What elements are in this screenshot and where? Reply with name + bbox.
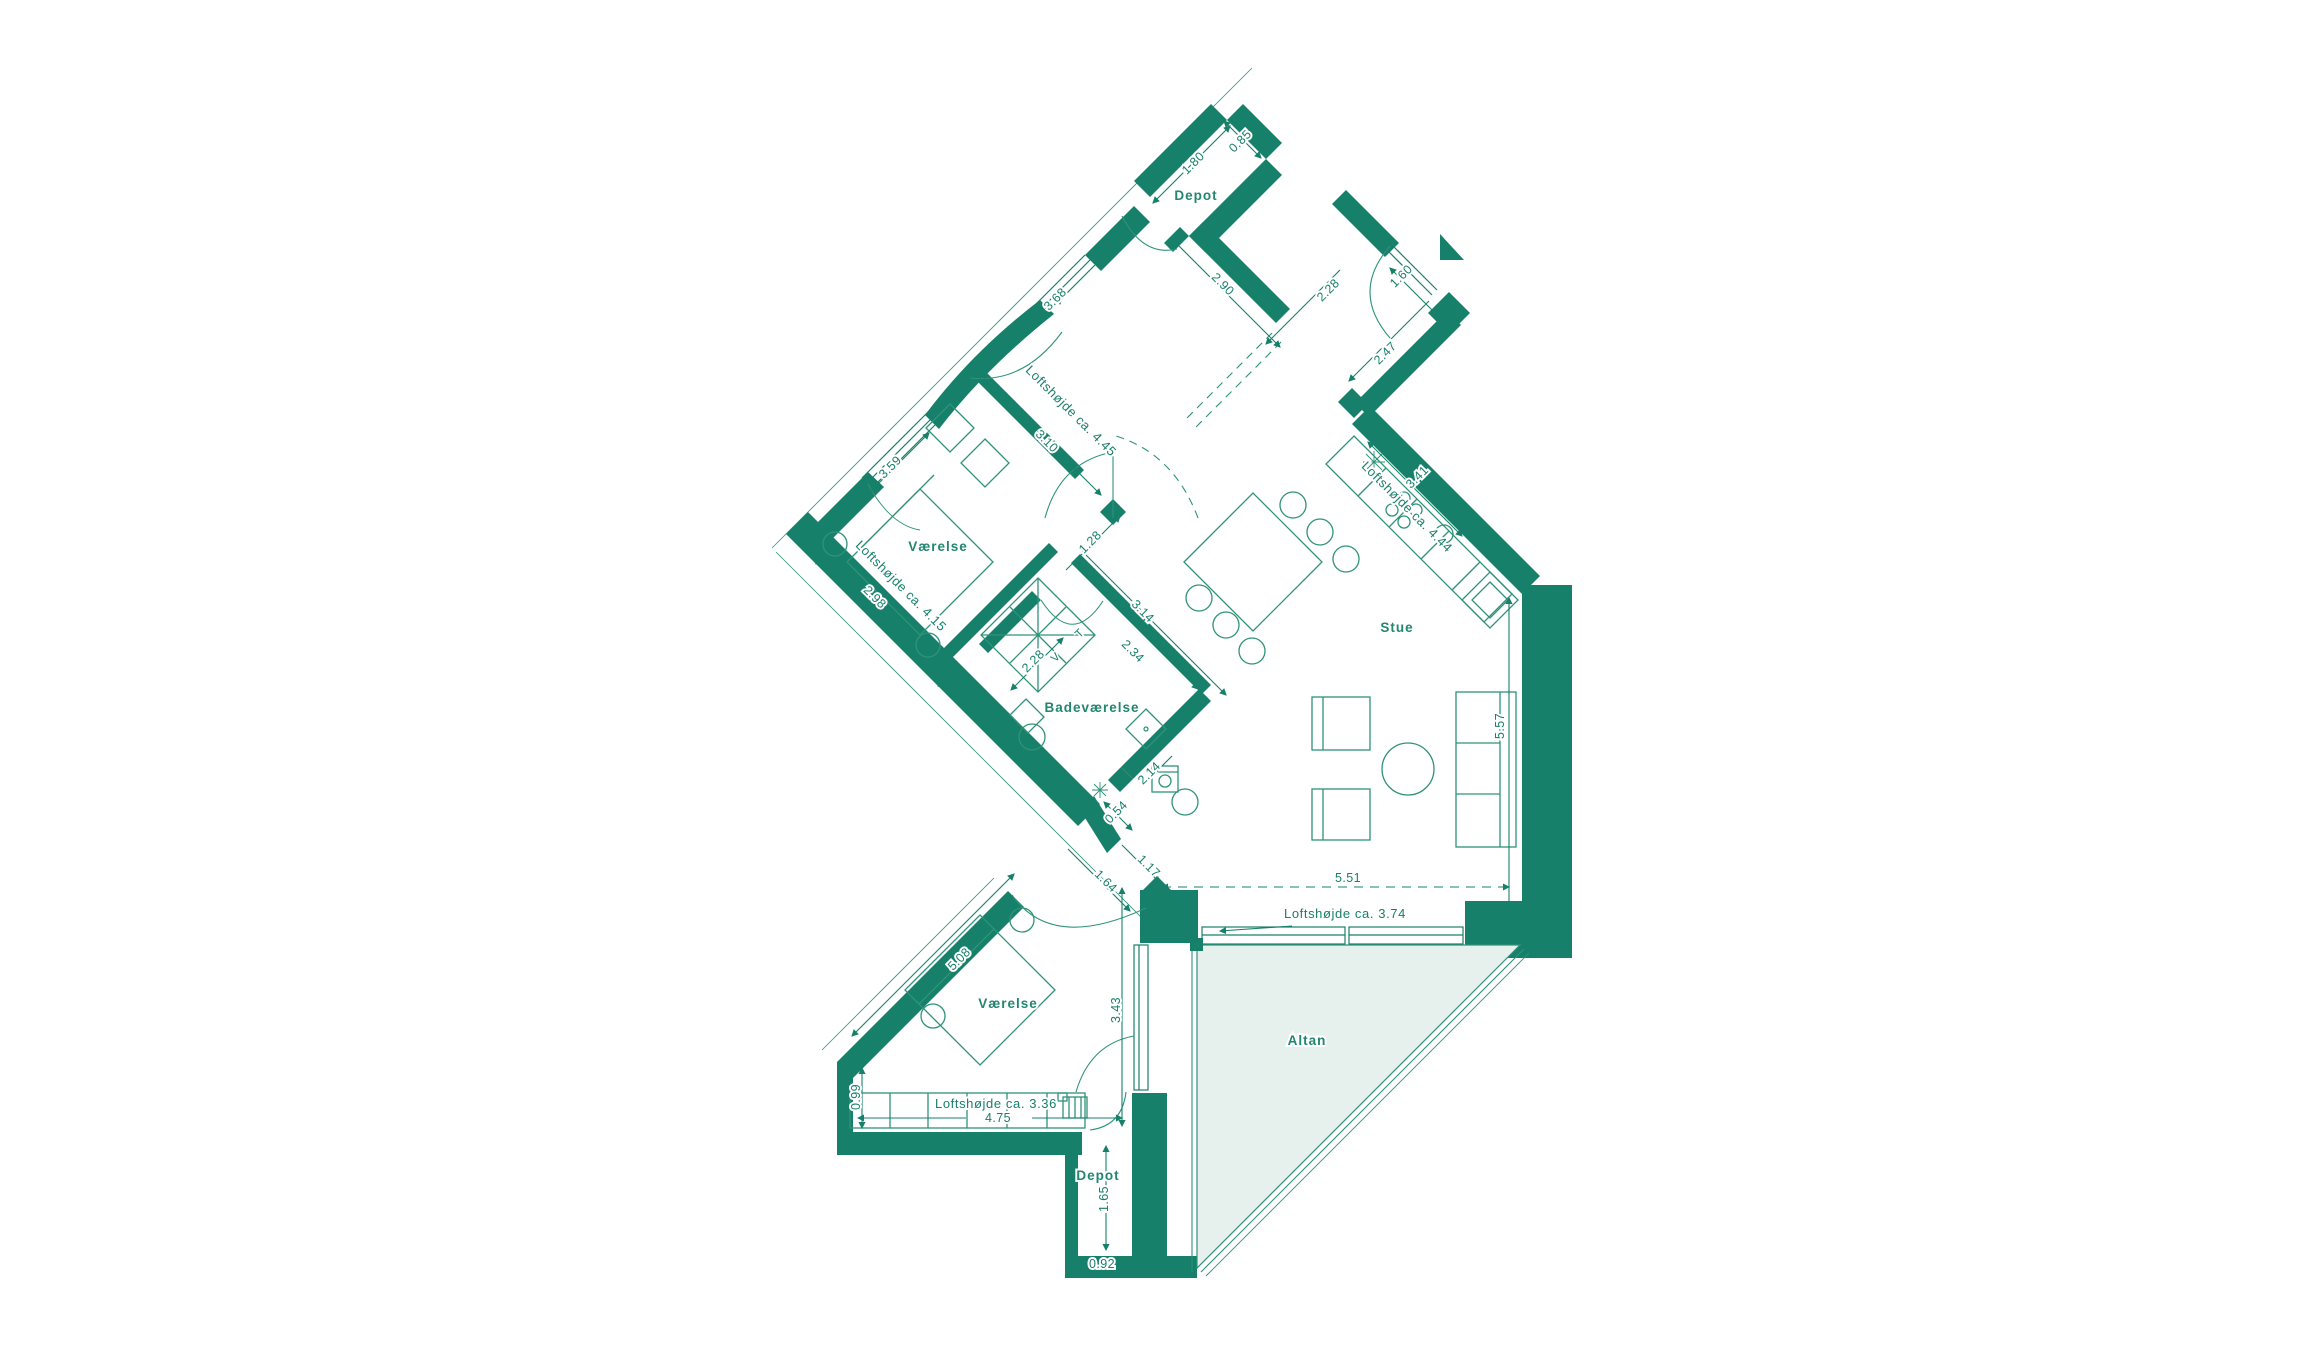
closet-vaerelse-upper	[926, 404, 1009, 487]
labels-layer: Depot Værelse Badeværelse Stue Værelse D…	[849, 127, 1507, 1271]
floorplan-drawing: Depot Værelse Badeværelse Stue Værelse D…	[0, 0, 2320, 1360]
dim-bath-hall-length: 2.28	[1019, 647, 1047, 675]
window-vaerelse-lower-balcony	[1134, 945, 1148, 1090]
ceiling-note-stue: Loftshøjde ca. 3.74	[1284, 906, 1406, 921]
floor-drain-icon	[1092, 782, 1108, 798]
room-label-depot-top: Depot	[1174, 188, 1217, 203]
dim-vaerelse-upper-width: 3.59	[876, 453, 904, 481]
plant-stue	[1172, 789, 1198, 815]
dryer-mark: T	[1073, 627, 1086, 640]
dim-stue-east-wall: 5.57	[1493, 713, 1507, 739]
ceiling-note-vaerelse-lower: Loftshøjde ca. 3.36	[935, 1096, 1057, 1111]
room-label-stue: Stue	[1380, 620, 1413, 635]
balcony-altan	[1190, 938, 1529, 1276]
dim-stue-entry-door: 1.60	[1387, 262, 1415, 290]
room-label-vaerelse-upper: Værelse	[908, 539, 968, 554]
ceiling-note-entre: Loftshøjde ca. 4.45	[1023, 362, 1120, 459]
dim-vaerelse-lower-depth: 3.43	[1109, 997, 1123, 1023]
dim-stue-south-wall: 5.51	[1335, 871, 1361, 885]
dim-stue-north-notch: 2.28	[1314, 276, 1342, 304]
dim-depot-bottom-depth: 1.65	[1097, 1186, 1111, 1212]
dining-table-group	[1184, 492, 1359, 664]
armchairs	[1312, 697, 1370, 840]
dim-vaerelse-lower-door: 1.64	[1092, 867, 1120, 895]
coffee-table	[1382, 743, 1434, 795]
dim-depot-bottom-width: 0.92	[1089, 1257, 1115, 1271]
room-label-altan: Altan	[1288, 1033, 1327, 1048]
washer-mark: V	[1049, 651, 1063, 665]
dashed-openings-layer	[1116, 333, 1281, 518]
room-label-depot-bottom: Depot	[1076, 1168, 1119, 1183]
radiator-icon	[1058, 1093, 1087, 1118]
dim-vaerelse-lower-width: 4.75	[985, 1111, 1011, 1125]
window-vaerelse-upper	[862, 410, 940, 488]
room-label-badevaerelse: Badeværelse	[1044, 700, 1139, 715]
dim-hall-opening: 1.17	[1135, 852, 1163, 880]
dim-vaerelse-lower-west: 0.99	[849, 1084, 863, 1110]
dim-bath-hall-door: 1.28	[1076, 528, 1104, 556]
floorplan-page: Depot Værelse Badeværelse Stue Værelse D…	[0, 0, 2320, 1360]
walls-layer	[786, 104, 1572, 1278]
orientation-marker-icon	[1440, 234, 1464, 260]
dim-bath-inner-wall: 2.34	[1119, 637, 1147, 665]
sofa	[1456, 692, 1516, 847]
room-label-vaerelse-lower: Værelse	[978, 996, 1038, 1011]
